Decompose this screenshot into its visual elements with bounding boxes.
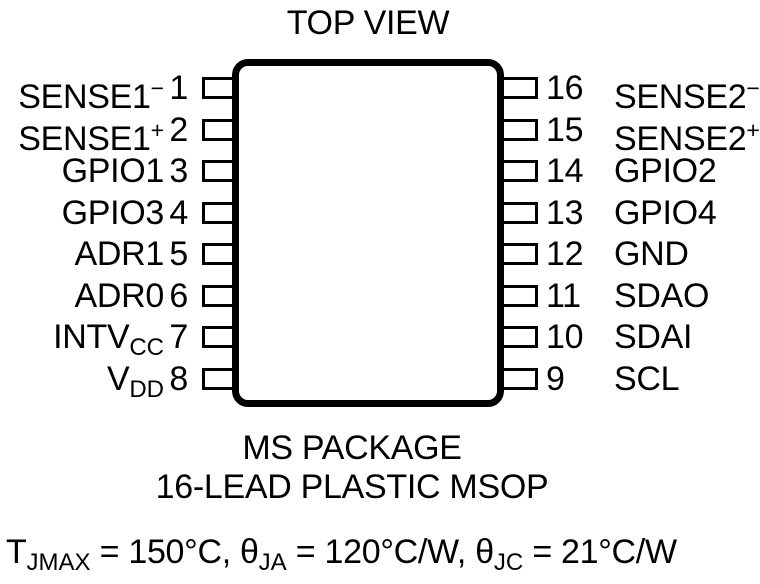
pin-number-5: 5: [152, 235, 188, 273]
pin-label-gpio2: GPIO2: [614, 152, 716, 190]
pin-label-text: GPIO1: [62, 152, 164, 190]
pin-number-2: 2: [152, 111, 188, 149]
pin-label-sense1-plus: SENSE1+: [0, 111, 164, 149]
pin-number-16: 16: [546, 69, 602, 107]
pin-number-12: 12: [546, 235, 602, 273]
pin-number-7: 7: [152, 318, 188, 356]
pin-lead-13: [498, 202, 538, 224]
pin-label-intvcc: INTVCC: [0, 318, 164, 356]
pin-lead-10: [498, 326, 538, 348]
pin-number-10: 10: [546, 318, 602, 356]
pin-number-4: 4: [152, 194, 188, 232]
pin-label-gpio3: GPIO3: [0, 194, 164, 232]
pin-label-sdai: SDAI: [614, 318, 692, 356]
pin-label-vdd: VDD: [0, 360, 164, 398]
theta-jc-value: = 21°C/W: [523, 533, 677, 571]
pin-label-sdao: SDAO: [614, 277, 709, 315]
theta-ja-symbol: θ: [240, 533, 259, 571]
superscript: +: [746, 117, 759, 143]
tjmax-symbol: T: [6, 533, 26, 571]
pin-number-14: 14: [546, 152, 602, 190]
pin-label-text: GPIO3: [62, 194, 164, 232]
pin-number-15: 15: [546, 111, 602, 149]
subscript: JMAX: [26, 549, 90, 576]
pin-number-8: 8: [152, 360, 188, 398]
pin-label-scl: SCL: [614, 360, 679, 398]
theta-jc-symbol: θ: [475, 533, 494, 571]
pin-label-text: GPIO2: [614, 152, 716, 190]
pin-label-text: ADR1: [75, 235, 165, 273]
pin-number-3: 3: [152, 152, 188, 190]
pin-label-text: GND: [614, 235, 689, 273]
tjmax-value: = 150°C,: [90, 533, 240, 571]
pin-label-sense2-plus: SENSE2+: [614, 111, 760, 149]
top-view-label: TOP VIEW: [232, 4, 504, 42]
pin-lead-14: [498, 160, 538, 182]
pin-number-13: 13: [546, 194, 602, 232]
ic-package-body: [232, 59, 504, 407]
pin-lead-16: [498, 77, 538, 99]
pin-label-text: SDAO: [614, 277, 709, 315]
pin-label-gpio1: GPIO1: [0, 152, 164, 190]
package-description: 16-LEAD PLASTIC MSOP: [102, 468, 602, 506]
pin-label-sense1-minus: SENSE1−: [0, 69, 164, 107]
pin-label-text: SDAI: [614, 318, 692, 356]
subscript: JC: [494, 549, 523, 576]
pin-lead-12: [498, 243, 538, 265]
package-name: MS PACKAGE: [102, 429, 602, 467]
pin-label-gpio4: GPIO4: [614, 194, 716, 232]
pin-label-text: INTV: [53, 318, 129, 356]
pin-lead-15: [498, 119, 538, 141]
pin-number-1: 1: [152, 69, 188, 107]
pin-label-text: SCL: [614, 360, 679, 398]
theta-ja-value: = 120°C/W,: [287, 533, 476, 571]
pin-label-text: ADR0: [75, 277, 165, 315]
pin-label-gnd: GND: [614, 235, 689, 273]
pin-label-text: V: [107, 360, 129, 398]
pin-number-6: 6: [152, 277, 188, 315]
pinout-diagram: TOP VIEW SENSE1− SENSE1+ GPIO1 GPIO3 ADR…: [0, 0, 760, 584]
pin-label-sense2-minus: SENSE2−: [614, 69, 760, 107]
pin-lead-9: [498, 368, 538, 390]
pin-number-11: 11: [546, 277, 602, 315]
superscript: −: [746, 75, 759, 101]
pin-label-adr0: ADR0: [0, 277, 164, 315]
subscript: JA: [259, 549, 287, 576]
pin-number-9: 9: [546, 360, 602, 398]
pin-label-text: GPIO4: [614, 194, 716, 232]
pin-lead-11: [498, 285, 538, 307]
pin-label-adr1: ADR1: [0, 235, 164, 273]
thermal-note: TJMAX = 150°C, θJA = 120°C/W, θJC = 21°C…: [6, 528, 760, 576]
